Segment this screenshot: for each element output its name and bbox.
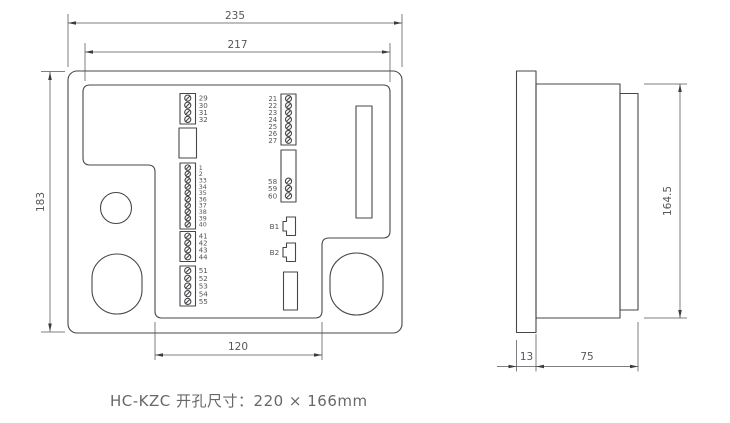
blank-module-left (179, 128, 197, 158)
dimension-front-bottom-width: 120 (155, 322, 322, 360)
technical-drawing-canvas: 2930313212333435363738394041424344515253… (0, 0, 730, 423)
screw-slot-icon (186, 191, 189, 194)
screw-slot-icon (186, 103, 190, 107)
screw-slot-icon (186, 216, 189, 219)
screw-slot-icon (287, 187, 291, 191)
blank-module-left-outline (179, 128, 197, 158)
screw-slot-icon (287, 104, 291, 108)
side-body (536, 84, 620, 318)
screw-slot-icon (287, 118, 291, 122)
terminal-block-41-44: 41424344 (180, 232, 208, 262)
screw-slot-icon (186, 234, 190, 238)
screw-slot-icon (186, 204, 189, 207)
screw-slot-icon (186, 269, 190, 273)
arrowhead-icon (382, 50, 390, 54)
screw-slot-icon (186, 255, 190, 259)
screw-slot-icon (186, 292, 190, 296)
terminal-label: 60 (268, 191, 278, 200)
caption: HC-KZC 开孔尺寸：220 × 166mm (110, 390, 368, 411)
screw-slot-icon (287, 97, 291, 101)
vent-slot-opening (356, 106, 372, 218)
connector-socket-icon (283, 243, 296, 262)
arrowhead-icon (48, 324, 52, 332)
screw-slot-icon (186, 248, 190, 252)
front-flange-outline (68, 71, 402, 333)
screw-slot-icon (186, 96, 190, 100)
terminal-block-21-27: 21222324252627 (268, 94, 296, 145)
screw-slot-icon (287, 132, 291, 136)
arrowhead-icon (314, 353, 322, 357)
terminal-layer: 2930313212333435363738394041424344515253… (179, 94, 298, 311)
side-rear-terminal-cover (620, 94, 638, 311)
connector-socket-icon (283, 217, 296, 236)
mounting-hole-bottom-right (330, 253, 383, 315)
terminal-label: 32 (199, 115, 208, 124)
screw-slot-icon (186, 118, 190, 122)
screw-slot-icon (287, 125, 291, 129)
screw-slot-icon (287, 111, 291, 115)
mounting-hole-bottom-left (92, 254, 142, 314)
dimension-value: 235 (225, 10, 245, 22)
arrowhead-icon (394, 21, 402, 25)
screw-slot-icon (186, 276, 190, 280)
screw-slot-icon (186, 197, 189, 200)
terminal-block-51-55: 5152535455 (180, 266, 208, 306)
terminal-label: B1 (270, 222, 280, 231)
screw-slot-icon (186, 223, 189, 226)
arrowhead-icon (536, 365, 544, 369)
arrowhead-icon (509, 365, 517, 369)
dimension-value: 183 (35, 192, 47, 212)
arrowhead-icon (630, 365, 638, 369)
dimension-value: 164.5 (662, 186, 674, 216)
dimension-front-height: 183 (35, 72, 65, 333)
front-body-outline (83, 85, 390, 318)
screw-slot-icon (186, 179, 189, 182)
blank-module-right (284, 272, 298, 310)
screw-slot-icon (186, 172, 189, 175)
screw-slot-icon (186, 299, 190, 303)
terminal-label: 55 (199, 297, 208, 306)
arrowhead-icon (155, 353, 163, 357)
terminal-block-58-60-outline (281, 150, 296, 202)
arrowhead-icon (678, 310, 682, 318)
terminal-block-1-40: 123334353637383940 (180, 163, 207, 229)
side-view (517, 71, 639, 333)
screw-slot-icon (287, 194, 291, 198)
arrowhead-icon (678, 84, 682, 92)
terminal-block-58-60: 585960 (268, 150, 296, 202)
screw-slot-icon (186, 110, 190, 114)
screw-slot-icon (186, 166, 189, 169)
arrowhead-icon (85, 50, 93, 54)
terminal-block-29-32: 29303132 (180, 94, 208, 125)
connector-b1: B1 (270, 217, 296, 236)
screw-slot-icon (287, 139, 291, 143)
dimension-side-depths: 13 75 (497, 322, 638, 372)
terminal-label: 27 (268, 137, 277, 145)
dimension-value: 217 (227, 39, 247, 51)
side-front-bezel (517, 71, 537, 333)
blank-module-right-outline (284, 272, 298, 310)
arrowhead-icon (68, 21, 76, 25)
round-mounting-hole (101, 193, 132, 224)
engineering-drawing: 2930313212333435363738394041424344515253… (0, 0, 730, 423)
terminal-label: 44 (199, 253, 208, 261)
screw-slot-icon (287, 179, 291, 183)
dimension-value: 13 (520, 351, 533, 363)
arrowhead-icon (48, 72, 52, 80)
screw-slot-icon (186, 284, 190, 288)
dimension-value: 120 (228, 341, 248, 353)
screw-slot-icon (186, 241, 190, 245)
screw-slot-icon (186, 210, 189, 213)
dimension-side-height: 164.5 (644, 84, 687, 318)
connector-b2: B2 (270, 243, 296, 262)
front-view: 2930313212333435363738394041424344515253… (68, 71, 402, 333)
terminal-label: B2 (270, 248, 280, 257)
dimension-front-inner-width: 217 (85, 39, 390, 82)
screw-slot-icon (186, 185, 189, 188)
terminal-label: 40 (199, 222, 207, 229)
dimension-value: 75 (580, 351, 593, 363)
